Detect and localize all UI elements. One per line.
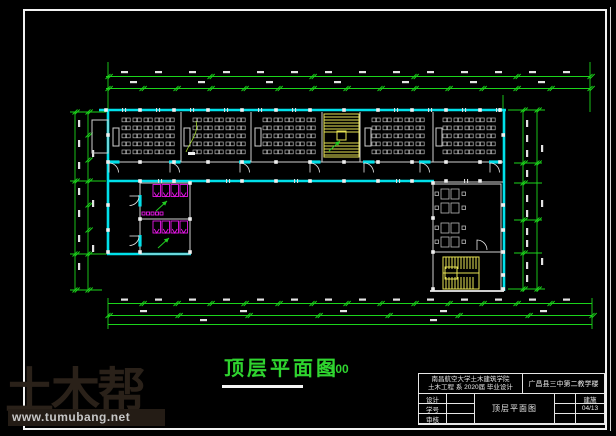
plan-scale: 1:100 — [318, 362, 349, 376]
dimension-top — [106, 62, 595, 112]
institution-line2: 土木工程 系 2020届 毕业设计 — [428, 384, 513, 392]
row-label-review: 审核 — [419, 414, 447, 424]
cell-blank-2 — [555, 404, 576, 414]
urinal-row — [142, 212, 163, 215]
dimension-bottom-labels — [121, 299, 570, 322]
dimension-right — [503, 95, 545, 292]
stairwell-southeast — [430, 252, 504, 291]
title-block: 南昌航空大学土木建筑学院 土木工程 系 2020届 毕业设计 广昌县三中第二教学… — [418, 373, 605, 425]
dimension-right-labels — [526, 120, 543, 282]
title-block-institution: 南昌航空大学土木建筑学院 土木工程 系 2020届 毕业设计 — [419, 374, 523, 393]
plan-title-underline — [222, 385, 303, 388]
classroom-desks — [122, 118, 495, 154]
office-door-arc — [477, 240, 487, 250]
cell-blank-4 — [576, 414, 604, 424]
stairwell-north — [324, 114, 359, 157]
cad-drawing-canvas: 顶层平面图 1:100 南昌航空大学土木建筑学院 土木工程 系 2020届 毕业… — [0, 0, 616, 436]
drawing-name: 顶层平面图 — [475, 394, 555, 424]
row-value-review — [447, 414, 475, 424]
cell-blank-1 — [555, 394, 576, 404]
dimension-left — [70, 110, 106, 293]
drawing-category: 建施 — [576, 394, 604, 404]
cell-blank-3 — [555, 414, 576, 424]
row-value-design — [447, 394, 475, 404]
project-name: 广昌县三中第二教学楼 — [523, 374, 604, 393]
dimension-top-labels — [121, 71, 570, 83]
row-label-student-id: 学号 — [419, 404, 447, 414]
dimension-bottom — [106, 298, 597, 329]
sheet-number: 04/13 — [576, 404, 604, 414]
interior-walls — [92, 112, 503, 182]
institution-line1: 南昌航空大学土木建筑学院 — [432, 376, 510, 384]
row-value-student-id — [447, 404, 475, 414]
office-room — [433, 184, 501, 252]
structural-columns — [104, 108, 505, 291]
watermark-url: www.tumubang.net — [8, 409, 165, 426]
exterior-walls — [99, 110, 506, 291]
row-label-design: 设计 — [419, 394, 447, 404]
